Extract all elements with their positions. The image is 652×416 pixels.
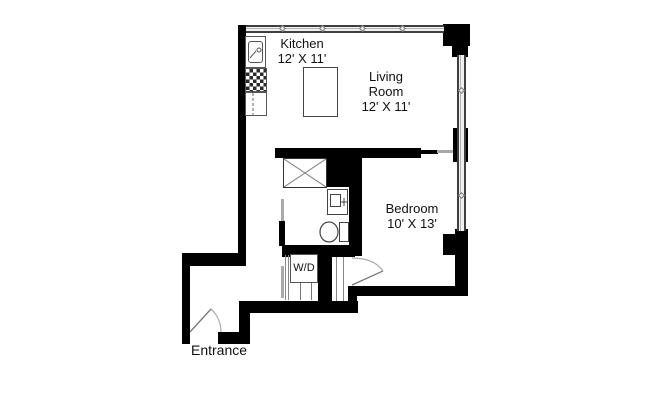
bathroom-pocket-door xyxy=(281,199,284,221)
wall-bedroom-south xyxy=(348,286,468,296)
window-east xyxy=(457,55,466,231)
wall-wd-divider xyxy=(318,250,332,305)
toilet-bowl-icon xyxy=(320,222,338,242)
kitchen-name: Kitchen xyxy=(260,36,344,51)
window-north xyxy=(246,25,444,33)
bedroom-label: Bedroom 10' X 13' xyxy=(370,201,454,231)
wall-east-lower xyxy=(455,229,468,296)
window-mullion-icon xyxy=(399,25,406,32)
entrance-label: Entrance xyxy=(191,343,271,358)
wall-east-lower-notch xyxy=(443,234,455,255)
wall-bath-east xyxy=(349,158,362,256)
floor-plan: W/D Kitchen 12' X 11' Living Room 12' X … xyxy=(0,0,652,416)
closet-door-track-right xyxy=(336,257,344,301)
wall-entry-west xyxy=(182,253,190,344)
bedroom-door-arc xyxy=(352,258,383,271)
toilet-tank-icon xyxy=(339,222,349,242)
kitchen-label: Kitchen 12' X 11' xyxy=(260,36,344,66)
washer-dryer-box: W/D xyxy=(290,254,318,283)
washer-dryer-label: W/D xyxy=(291,263,317,274)
kitchen-island xyxy=(303,67,338,117)
wall-ne-corner-a xyxy=(443,24,470,46)
wall-bath-door-stub xyxy=(279,221,285,246)
entrance-door-arc xyxy=(211,309,221,332)
closet-door-track-left xyxy=(285,255,289,300)
window-glass-line xyxy=(246,28,444,29)
wall-bedroom-north xyxy=(275,148,421,158)
wall-plumbing-block xyxy=(327,158,351,187)
window-mullion-icon xyxy=(279,25,286,32)
living-room-label: Living Room 12' X 11' xyxy=(346,69,426,114)
wall-hall-south xyxy=(239,301,358,313)
window-mullion-icon xyxy=(319,25,326,32)
shower-icon xyxy=(283,158,327,188)
bedroom-name: Bedroom xyxy=(370,201,454,216)
wall-bedroom-north-thin xyxy=(420,150,438,154)
living-room-name-line1: Living xyxy=(346,69,426,84)
vanity-basin-icon xyxy=(330,194,341,207)
washer-dryer-cabinet-lines xyxy=(300,283,312,300)
entrance-door-leaf xyxy=(190,309,211,332)
bedroom-dimensions: 10' X 13' xyxy=(370,216,454,231)
window-mullion-icon xyxy=(359,25,366,32)
living-room-dimensions: 12' X 11' xyxy=(346,99,426,114)
bedroom-door-leaf xyxy=(352,271,383,285)
window-glass-line xyxy=(460,55,461,231)
living-room-name-line2: Room xyxy=(346,84,426,99)
hall-pocket-door xyxy=(281,266,284,298)
refrigerator-icon xyxy=(245,92,267,116)
kitchen-dimensions: 12' X 11' xyxy=(260,51,344,66)
wall-bedroom-north-gray-line xyxy=(437,150,453,153)
wall-mid-west xyxy=(182,253,246,266)
stove-icon xyxy=(245,68,267,92)
